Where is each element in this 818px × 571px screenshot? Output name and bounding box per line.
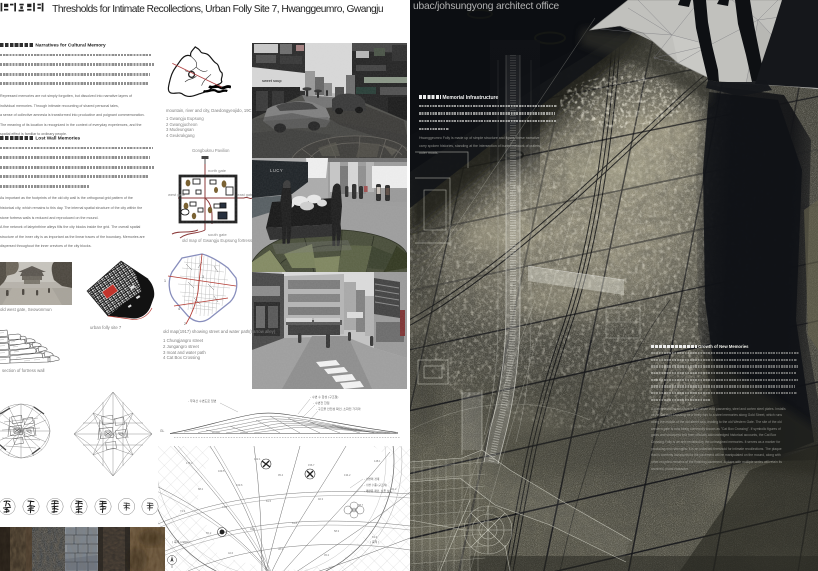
svg-text:142.1: 142.1 [254, 457, 261, 461]
svg-text:GL: GL [160, 429, 164, 433]
svg-text:- 수변전 한점: - 수변전 한점 [313, 400, 330, 405]
svg-text:Gongbuknu Pavilion: Gongbuknu Pavilion [192, 148, 230, 153]
svg-text:east gate: east gate [238, 193, 253, 197]
svg-text:45.2: 45.2 [324, 553, 330, 557]
svg-text:38.9: 38.9 [278, 547, 284, 551]
svg-text:63.4: 63.4 [372, 535, 378, 539]
svg-text:49.2: 49.2 [250, 527, 256, 531]
svg-text:148.1: 148.1 [374, 459, 381, 463]
svg-text:- 수변 수종 (구조적): - 수변 수종 (구조적) [364, 483, 387, 487]
svg-text:71.3: 71.3 [180, 509, 186, 513]
svg-text:58.3: 58.3 [334, 529, 340, 533]
svg-text:north gate: north gate [208, 168, 227, 173]
svg-text:103.6: 103.6 [236, 483, 243, 487]
svg-text:south gate: south gate [208, 232, 227, 237]
svg-text:old map of Gwangju Eupsung for: old map of Gwangju Eupsung fortress wall [182, 238, 252, 243]
svg-text:156.7: 156.7 [308, 463, 315, 467]
svg-text:77.8: 77.8 [222, 505, 228, 509]
svg-text:88.2: 88.2 [198, 487, 204, 491]
svg-text:- 재활용 재료, 보존 보도: - 재활용 재료, 보존 보도 [364, 489, 392, 493]
svg-text:42.6: 42.6 [228, 551, 234, 555]
svg-text:4: 4 [178, 307, 180, 311]
svg-text:134.2: 134.2 [344, 473, 351, 477]
svg-text:3: 3 [202, 275, 204, 279]
svg-text:92.3: 92.3 [318, 497, 324, 501]
svg-text:61.8: 61.8 [292, 521, 298, 525]
svg-text:- 구조물 안전성 확인, 소화전 가지마: - 구조물 안전성 확인, 소화전 가지마 [316, 406, 361, 411]
svg-text:( 축척 1/200 ): ( 축척 1/200 ) [172, 539, 190, 544]
svg-text:( 축척 ): ( 축척 ) [370, 539, 379, 544]
svg-text:- 무덕산 수변도로 입변: - 무덕산 수변도로 입변 [188, 398, 217, 403]
svg-text:95.4: 95.4 [278, 473, 284, 477]
svg-text:- 수변 수 합성 (구조절): - 수변 수 합성 (구조절) [310, 394, 338, 399]
svg-text:81.5: 81.5 [266, 499, 272, 503]
svg-text:1: 1 [164, 279, 166, 283]
svg-text:55.1: 55.1 [206, 531, 212, 535]
svg-text:176.3: 176.3 [186, 461, 193, 465]
svg-text:169.5: 169.5 [218, 469, 225, 473]
svg-text:- 수변의 경계: - 수변의 경계 [364, 477, 380, 481]
svg-text:2: 2 [184, 322, 186, 326]
